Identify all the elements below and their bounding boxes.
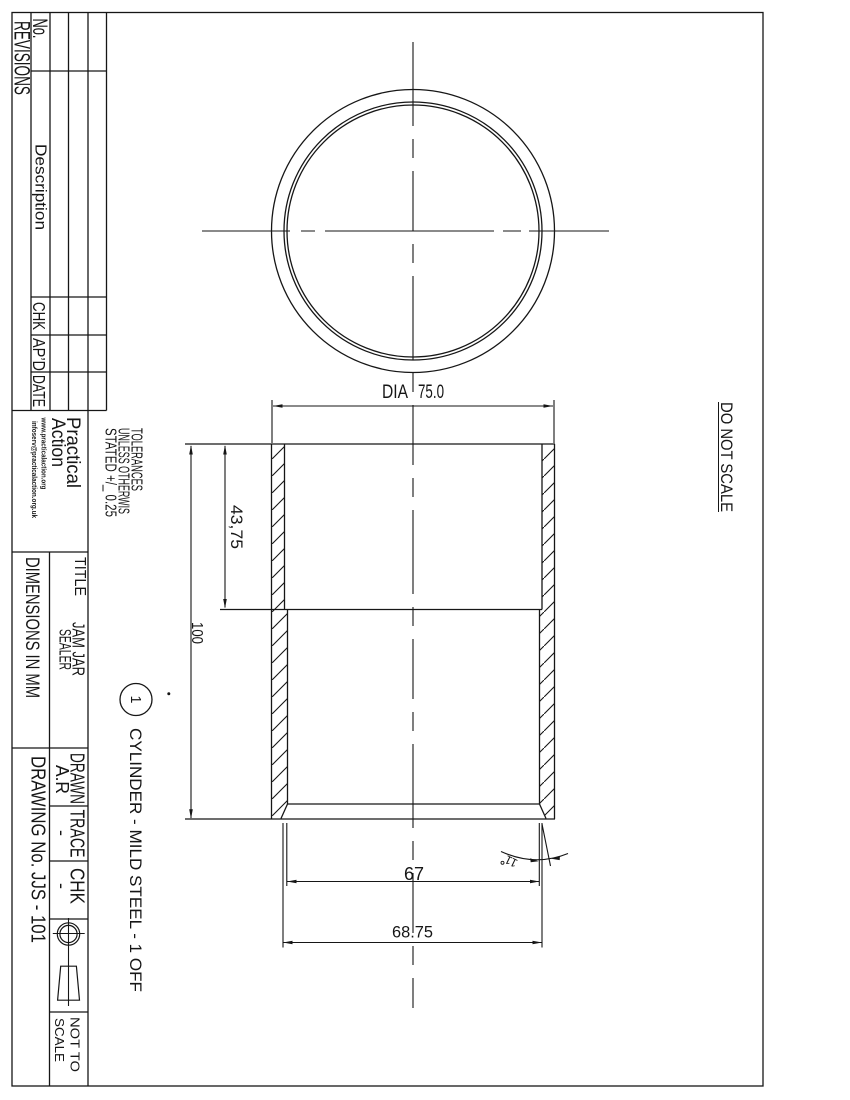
svg-text:Action: Action (47, 418, 69, 467)
svg-text:STATED +/_ 0.25: STATED +/_ 0.25 (102, 428, 119, 517)
svg-text:-: - (52, 830, 72, 836)
svg-text:68.75: 68.75 (392, 923, 433, 942)
svg-text:1: 1 (127, 696, 143, 704)
svg-text:DIMENSIONS IN MM: DIMENSIONS IN MM (21, 557, 43, 698)
svg-text:TITLE: TITLE (71, 557, 88, 596)
svg-text:-: - (52, 883, 72, 889)
svg-text:67: 67 (404, 864, 424, 884)
svg-text:CHK: CHK (29, 302, 49, 330)
svg-text:CYLINDER - MILD STEEL - 1 OFF: CYLINDER - MILD STEEL - 1 OFF (126, 728, 145, 992)
svg-text:100: 100 (188, 622, 205, 644)
svg-text:NOT TO: NOT TO (68, 1017, 82, 1072)
svg-text:A.R: A.R (52, 765, 72, 794)
svg-text:www.practicalaction.org: www.practicalaction.org (40, 417, 47, 490)
svg-text:AP’D: AP’D (29, 338, 49, 371)
svg-text:DIA: DIA (382, 382, 408, 403)
svg-text:75.0: 75.0 (418, 382, 444, 403)
svg-text:infoserv@practicalaction.org.u: infoserv@practicalaction.org.uk (30, 421, 37, 518)
svg-text:Description: Description (32, 144, 49, 230)
svg-text:SEALER: SEALER (56, 629, 75, 670)
svg-text:DO NOT SCALE: DO NOT SCALE (717, 402, 736, 512)
svg-text:DATE: DATE (29, 375, 49, 407)
svg-text:No.: No. (28, 19, 52, 39)
svg-text:DRAWING No. JJS - 101: DRAWING No. JJS - 101 (27, 756, 49, 943)
svg-text:43,75: 43,75 (227, 505, 246, 549)
svg-text:SCALE: SCALE (52, 1018, 66, 1062)
